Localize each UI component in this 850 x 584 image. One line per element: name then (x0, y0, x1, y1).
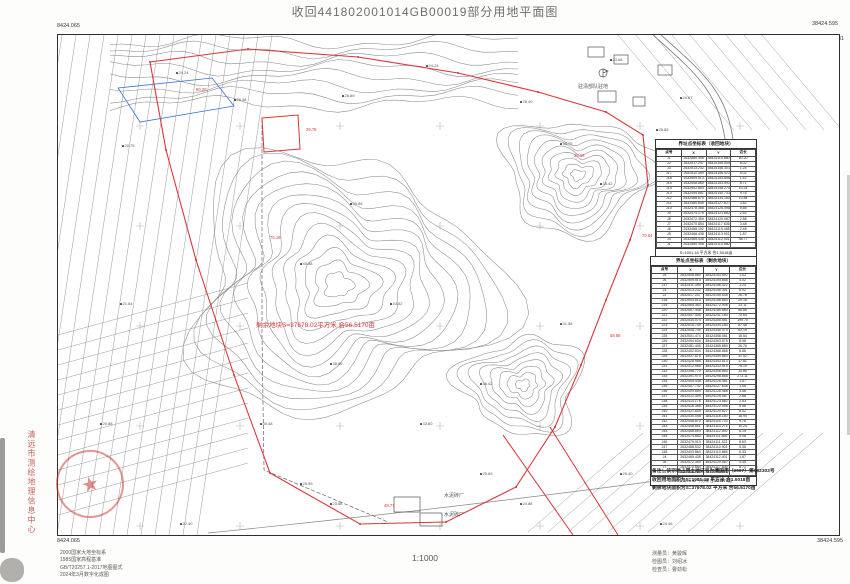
corner-coord-tr-top: 38424.595 (812, 21, 838, 27)
surveyor-line: 测量员：黄骏晖 (652, 551, 687, 559)
label-garrison: 驻清部队驻地 (578, 83, 608, 90)
remain-table-grid: 点号XY边长J52632508.86038424153.5921.42J6263… (651, 266, 756, 476)
reclaim-parcel-coord-table: 界址点坐标表（收回地块） 点号XY边长J12632580.49838424110… (655, 139, 757, 258)
spot-elevation: 33.42 (600, 181, 613, 186)
datum-line-3: GB/T20257.1-2017地图图式 (60, 565, 123, 572)
spot-elevation: 20.88 (100, 421, 113, 426)
spot-elevation: 28.85 (656, 127, 669, 132)
spot-elevation: 43.52 (390, 301, 403, 306)
map-sheet: 收回441802001014GB00019部分用地平面图 8424.065 26… (0, 0, 850, 584)
corner-coord-bl-bottom: 8424.065 (57, 538, 80, 544)
note-remain-area: 剩余地块面积为S=37678.02 平方米 合56.5170亩 (652, 485, 802, 494)
spot-elevation: 22.40 (180, 521, 193, 526)
scan-artifact-left (0, 438, 5, 553)
spot-elevation: 24.88 (520, 501, 533, 506)
label-cement-plant-1: 水泥砖厂 (444, 492, 464, 499)
seal-star-icon: ★ (78, 470, 101, 499)
spot-elevation: 28.89 (342, 93, 355, 98)
page-title: 收回441802001014GB00019部分用地平面图 (0, 3, 850, 20)
spot-elevation: 38.86 (330, 361, 343, 366)
spot-elevation: 24.67 (680, 95, 693, 100)
label-remain-area: 剩余地块S=37678.02平方米 合56.5170亩 (256, 319, 375, 329)
remain-table-title: 界址点坐标表（剩余地块） (651, 257, 756, 266)
spot-elevation: 23.68 (610, 57, 623, 62)
boundary-edge-length: 48.77 (384, 503, 394, 508)
spot-elevation: 24.46 (660, 521, 673, 526)
spot-elevation: 23.88 (330, 501, 343, 506)
remain-parcel-coord-table: 界址点坐标表（剩余地块） 点号XY边长J52632508.86038424153… (650, 256, 757, 486)
staff-signatures: 测量员：黄骏晖 检图员：刘绍冰 检查员：曹劲松 (652, 551, 687, 574)
reclaim-table-title: 界址点坐标表（收回地块） (656, 140, 756, 149)
boundary-edge-length: 26.78 (306, 127, 316, 132)
corner-coord-br-bottom: 38424.595 (817, 538, 843, 544)
notes-block: 备注：该宗地占用土地证号为清国用（2007）第092303号 收回用地面积为S=… (652, 468, 802, 494)
boundary-edge-length: 58.86 (610, 333, 620, 338)
boundary-edge-length: 70.64 (642, 233, 652, 238)
spot-elevation: 26.48 (234, 97, 247, 102)
spot-elevation: 35.86 (350, 201, 363, 206)
spot-elevation: 20.79 (122, 143, 135, 148)
spot-elevation: 21.54 (120, 301, 133, 306)
coord-row: J12632580.49838424110.880 (657, 242, 756, 247)
boundary-edge-length: 60.20 (196, 87, 206, 92)
note-certificate: 备注：该宗地占用土地证号为清国用（2007）第092303号 (652, 468, 802, 477)
label-cement-plant-2: 水泥砖厂 (444, 511, 464, 518)
corner-coord-tl-top: 8424.065 (57, 23, 80, 29)
reclaim-table-grid: 点号XY边长J12632580.49838424110.88060.20J226… (656, 149, 756, 248)
map-scale: 1:1000 (0, 553, 850, 563)
spot-elevation: 24.24 (426, 63, 439, 68)
spot-elevation: 31.58 (560, 321, 573, 326)
surveying-agency-stamp-text: 清远市测绘地理信息中心 (26, 430, 37, 550)
spot-elevation: 30.75 (560, 141, 573, 146)
scan-artifact-corner (0, 558, 24, 582)
note-reclaim-area: 收回用地面积为S=1001.18 平方米 合1.5018亩 (652, 477, 802, 486)
checker-line: 检图员：刘绍冰 (652, 559, 687, 567)
spot-elevation: 26.40 (620, 471, 633, 476)
spot-elevation: 36.42 (480, 381, 493, 386)
boundary-edge-length: 76.19 (270, 235, 280, 240)
inspector-line: 检查员：曹劲松 (652, 567, 687, 575)
spot-elevation: 25.69 (480, 471, 493, 476)
spot-elevation: 30.48 (260, 421, 273, 426)
spot-elevation: 26.40 (520, 99, 533, 104)
datum-line-4: 2024年3月数字化成图 (60, 572, 123, 579)
boundary-edge-length: 29.18 (574, 153, 584, 158)
spot-elevation: 33.80 (420, 421, 433, 426)
spot-elevation: 40.88 (300, 261, 313, 266)
spot-elevation: 24.24 (176, 70, 189, 75)
spot-elevation: 25.99 (300, 481, 313, 486)
